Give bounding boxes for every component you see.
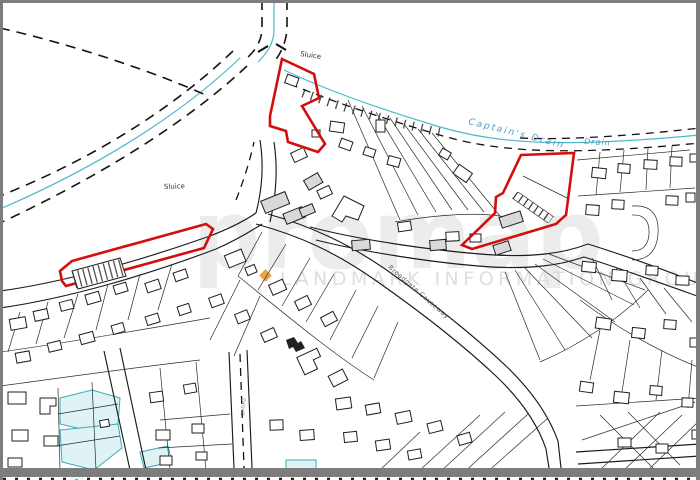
label-road-vertical: Drove	[239, 398, 246, 416]
label-drain: Drain	[584, 137, 611, 147]
map-viewport: promap LANDMARK INFORMATION GROUP	[0, 0, 700, 480]
map-image: promap LANDMARK INFORMATION GROUP	[0, 0, 700, 480]
label-sluice-left: Sluice	[164, 182, 185, 191]
